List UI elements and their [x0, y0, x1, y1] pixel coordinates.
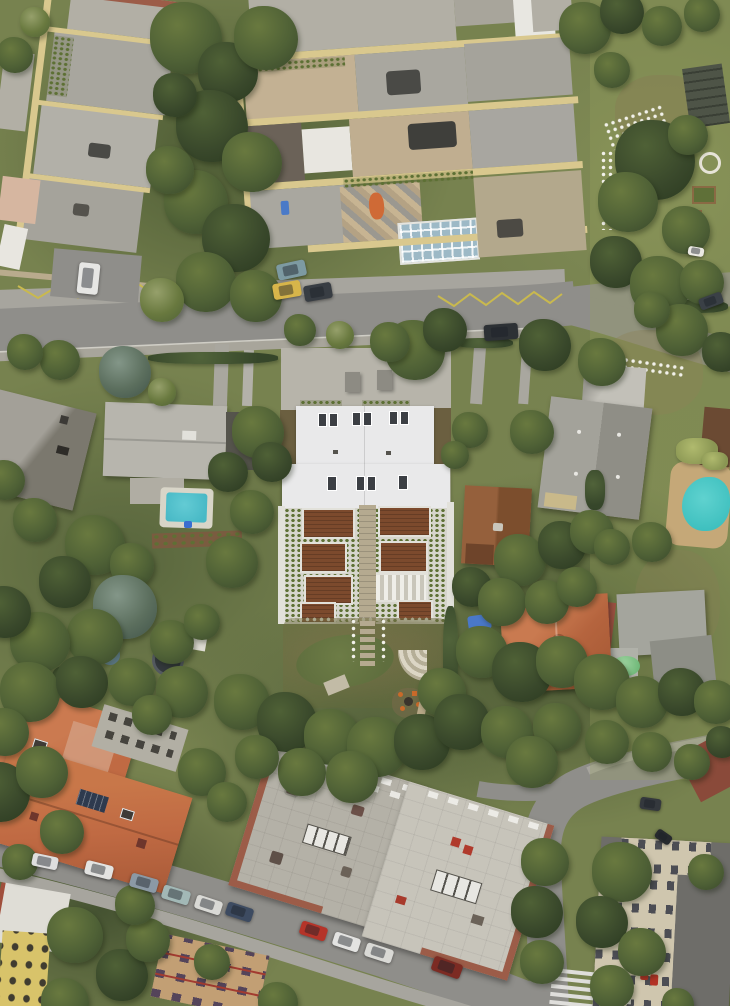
parked-car	[430, 955, 463, 979]
car-windshield	[135, 876, 152, 889]
parked-car	[84, 860, 115, 880]
parked-car	[331, 931, 361, 953]
car-windshield	[691, 248, 700, 255]
parked-car	[698, 291, 725, 310]
parked-car	[129, 872, 160, 893]
parked-car	[687, 246, 704, 258]
car-windshield	[337, 935, 353, 948]
car-windshield	[199, 898, 215, 911]
car-windshield	[282, 263, 299, 276]
parked-car	[224, 901, 254, 923]
car-windshield	[304, 924, 320, 937]
parked-car	[298, 920, 328, 942]
car-windshield	[657, 831, 668, 841]
parked-car	[654, 828, 674, 846]
car-windshield	[703, 295, 717, 307]
parked-car	[364, 942, 395, 964]
aerial-photo	[0, 0, 730, 1006]
car-windshield	[437, 960, 455, 975]
car-windshield	[309, 286, 325, 299]
car-windshield	[167, 888, 184, 901]
parked-car	[276, 259, 308, 281]
car-windshield	[81, 267, 94, 288]
car-windshield	[278, 284, 294, 297]
car-windshield	[490, 326, 508, 338]
car-windshield	[230, 905, 246, 918]
parked-car	[483, 323, 518, 341]
parked-car	[639, 797, 661, 812]
parked-car	[161, 884, 192, 906]
parked-car	[31, 852, 59, 870]
parked-car	[193, 894, 223, 916]
car-layer	[0, 0, 730, 1006]
parked-car	[272, 280, 302, 301]
parked-car	[303, 282, 333, 303]
car-windshield	[90, 863, 106, 875]
car-windshield	[644, 799, 656, 808]
car-windshield	[370, 946, 387, 959]
car-windshield	[36, 856, 51, 867]
parked-car	[76, 262, 100, 295]
